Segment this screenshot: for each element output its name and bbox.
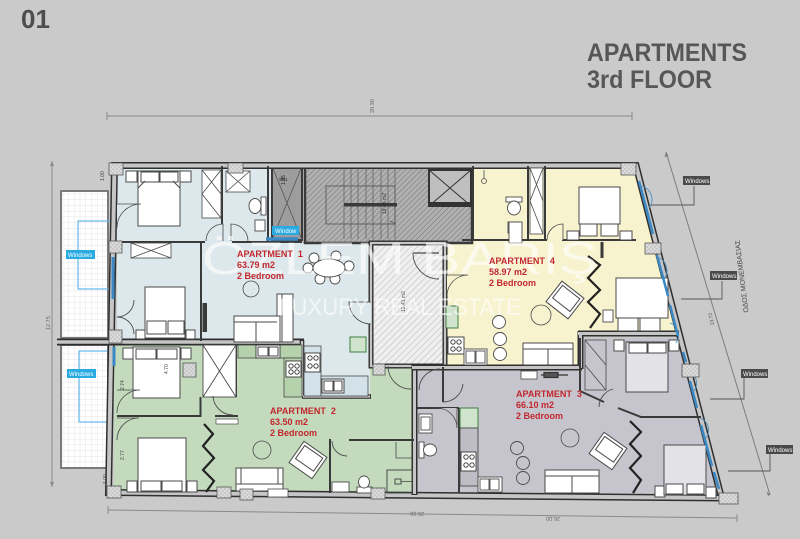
- svg-text:APARTMENT 3: APARTMENT 3: [516, 389, 582, 399]
- svg-text:1.00: 1.00: [100, 171, 106, 181]
- svg-text:58.97 m2: 58.97 m2: [489, 267, 527, 277]
- svg-text:26.00: 26.00: [410, 510, 424, 516]
- svg-text:Windows: Windows: [768, 448, 792, 454]
- svg-text:63.79 m2: 63.79 m2: [237, 260, 275, 270]
- svg-text:Windows: Windows: [712, 274, 736, 280]
- svg-text:12.75: 12.75: [46, 316, 52, 330]
- svg-text:2 Bedroom: 2 Bedroom: [489, 278, 536, 288]
- svg-text:LUXURY REAL ESTATE: LUXURY REAL ESTATE: [279, 294, 521, 321]
- svg-text:20.30: 20.30: [370, 99, 376, 113]
- svg-text:Windows: Windows: [68, 253, 92, 259]
- svg-text:Windows: Windows: [743, 372, 767, 378]
- svg-text:SE1: SE1: [279, 177, 288, 182]
- svg-text:2 Bedroom: 2 Bedroom: [237, 271, 284, 281]
- svg-text:01: 01: [21, 4, 50, 34]
- svg-text:Windows: Windows: [69, 372, 93, 378]
- svg-text:1.00: 1.00: [103, 474, 109, 484]
- svg-text:19.65 m2: 19.65 m2: [382, 193, 388, 214]
- svg-text:66.10 m2: 66.10 m2: [516, 400, 554, 410]
- svg-text:APARTMENT 2: APARTMENT 2: [270, 406, 336, 416]
- svg-text:APARTMENTS: APARTMENTS: [587, 39, 747, 67]
- svg-text:Windows: Windows: [685, 179, 709, 185]
- svg-text:4.70: 4.70: [164, 364, 170, 374]
- svg-text:APARTMENT 4: APARTMENT 4: [489, 256, 555, 266]
- svg-text:3rd FLOOR: 3rd FLOOR: [587, 66, 712, 94]
- svg-text:2 Bedroom: 2 Bedroom: [516, 411, 563, 421]
- svg-text:APARTMENT 1: APARTMENT 1: [237, 249, 303, 259]
- svg-text:26.00: 26.00: [546, 515, 560, 521]
- svg-text:2 Bedroom: 2 Bedroom: [270, 428, 317, 438]
- svg-text:2.77: 2.77: [120, 450, 126, 460]
- svg-text:2.74: 2.74: [120, 380, 126, 390]
- svg-text:63.50 m2: 63.50 m2: [270, 417, 308, 427]
